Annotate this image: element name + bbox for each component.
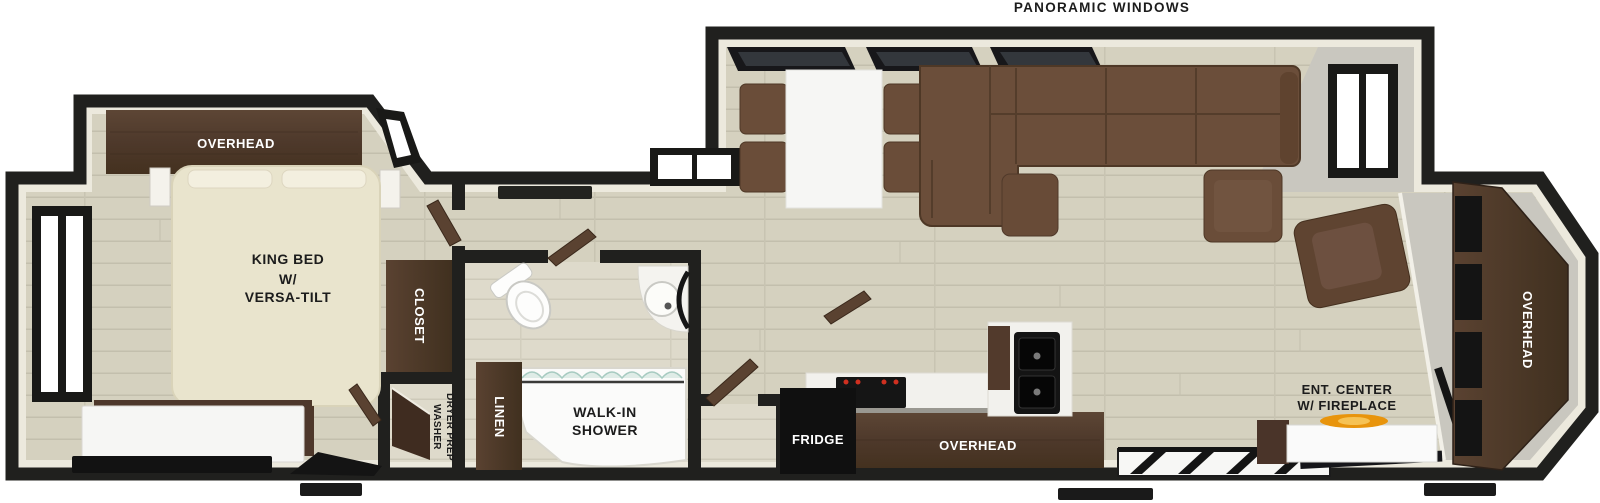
ottoman xyxy=(1002,174,1058,236)
fridge xyxy=(780,388,856,474)
ent-center-label-1: ENT. CENTER xyxy=(1302,382,1393,397)
kitchen-cab-rail xyxy=(856,408,988,413)
dinette-chair-2 xyxy=(740,142,788,192)
fireplace-flame-core xyxy=(1338,417,1370,425)
dresser xyxy=(82,406,304,462)
stabilizer-feet xyxy=(300,483,1496,500)
nightstand-right xyxy=(380,170,400,208)
rear-overhead-label: OVERHEAD xyxy=(1520,291,1535,369)
pillow-left xyxy=(188,170,272,188)
peninsula-side xyxy=(988,326,1010,390)
king-bed-label-1: KING BED xyxy=(252,251,324,267)
hall-window xyxy=(650,148,740,186)
entry-floor xyxy=(699,404,778,462)
panoramic-windows-label: PANORAMIC WINDOWS xyxy=(1014,0,1190,15)
bath-faucet xyxy=(665,303,672,310)
nightstand-left xyxy=(150,168,170,206)
kitchen-overhead-label: OVERHEAD xyxy=(939,438,1017,453)
tv xyxy=(72,456,272,473)
ent-side-cabinet xyxy=(1257,420,1289,464)
fireplace-cabinet xyxy=(1287,425,1437,462)
floorplan-page: OVERHEAD KING BED W/ VERSA-TILT CLOSET W… xyxy=(0,0,1600,503)
accent-chair xyxy=(1204,170,1282,242)
bath-sink xyxy=(645,282,679,316)
rv-floorplan: OVERHEAD KING BED W/ VERSA-TILT CLOSET W… xyxy=(0,0,1600,503)
sink-faucet-1 xyxy=(1034,353,1041,360)
bedroom-window xyxy=(32,206,92,402)
shower-label-1: WALK-IN xyxy=(573,404,636,420)
hall-roof-vent xyxy=(498,186,592,199)
king-bed-label-3: VERSA-TILT xyxy=(245,289,331,305)
dinette-table xyxy=(786,70,882,208)
linen-label: LINEN xyxy=(492,396,507,438)
dinette-chair-1 xyxy=(740,84,788,134)
king-bed xyxy=(172,166,380,406)
shower-label-2: SHOWER xyxy=(572,422,638,438)
sink-faucet-2 xyxy=(1034,389,1041,396)
closet-label: CLOSET xyxy=(412,288,427,344)
fridge-label: FRIDGE xyxy=(792,432,844,447)
king-bed-label-2: W/ xyxy=(279,271,297,287)
bedroom-overhead-label: OVERHEAD xyxy=(197,136,275,151)
washer-label-1: WASHER xyxy=(431,404,442,450)
sofa-arm xyxy=(1280,72,1298,164)
living-end-window xyxy=(1328,64,1398,178)
washer-label-2: DRYER PREP xyxy=(444,393,455,461)
pillow-right xyxy=(282,170,366,188)
ent-center-label-2: W/ FIREPLACE xyxy=(1297,398,1396,413)
